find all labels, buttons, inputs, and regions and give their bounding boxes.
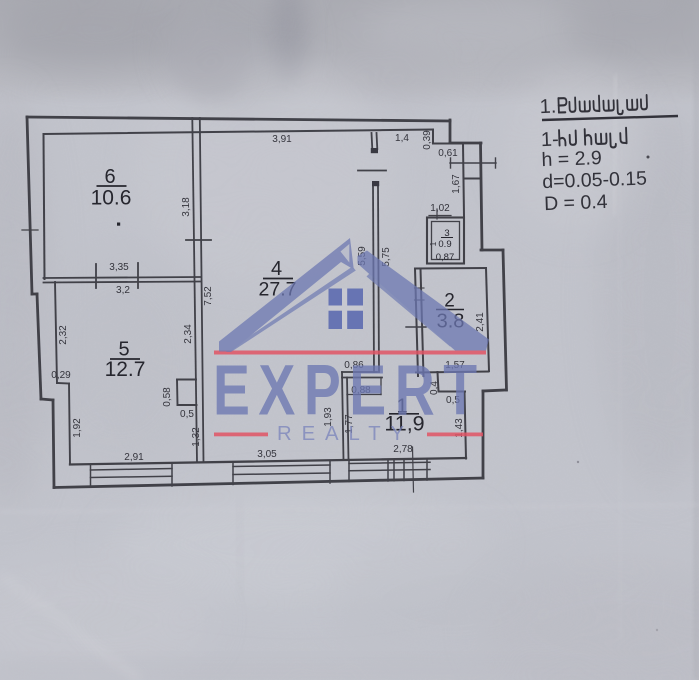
svg-text:REALTY: REALTY [277,422,414,445]
svg-text:1.: 1. [539,96,556,119]
svg-text:7,52: 7,52 [203,286,214,306]
svg-text:3,35: 3,35 [109,262,129,273]
svg-text:3,05: 3,05 [257,449,277,460]
svg-text:3,18: 3,18 [181,197,192,217]
svg-text:4: 4 [271,258,282,280]
svg-text:12.7: 12.7 [105,358,146,381]
svg-text:10.6: 10.6 [91,187,132,210]
svg-text:0.9: 0.9 [438,239,451,250]
svg-text:0,58: 0,58 [162,387,173,407]
svg-text:1,4: 1,4 [395,133,409,144]
svg-text:0,61: 0,61 [438,148,458,159]
svg-text:1,67: 1,67 [451,174,462,194]
svg-text:2,41: 2,41 [475,312,486,332]
svg-text:2,91: 2,91 [124,452,144,463]
svg-text:0,5: 0,5 [180,409,194,420]
svg-text:h = 2.9: h = 2.9 [541,147,602,171]
svg-text:3,2: 3,2 [116,285,130,296]
svg-text:6: 6 [104,166,115,188]
svg-text:EXPERT: EXPERT [213,351,486,430]
svg-text:D = 0.4: D = 0.4 [544,191,608,215]
svg-text:0,29: 0,29 [51,370,71,381]
svg-text:d=0.05-0.15: d=0.05-0.15 [542,167,647,193]
svg-text:1,02: 1,02 [430,203,450,214]
svg-text:0,39: 0,39 [422,130,433,150]
svg-text:1,92: 1,92 [72,418,83,438]
svg-text:3,91: 3,91 [272,134,292,145]
svg-text:2,32: 2,32 [58,325,69,345]
svg-text:0,87: 0,87 [436,252,455,263]
svg-text:1,32: 1,32 [191,427,202,447]
svg-text:1: 1 [428,241,438,246]
svg-text:2,78: 2,78 [393,444,413,455]
svg-text:2,34: 2,34 [183,324,194,344]
